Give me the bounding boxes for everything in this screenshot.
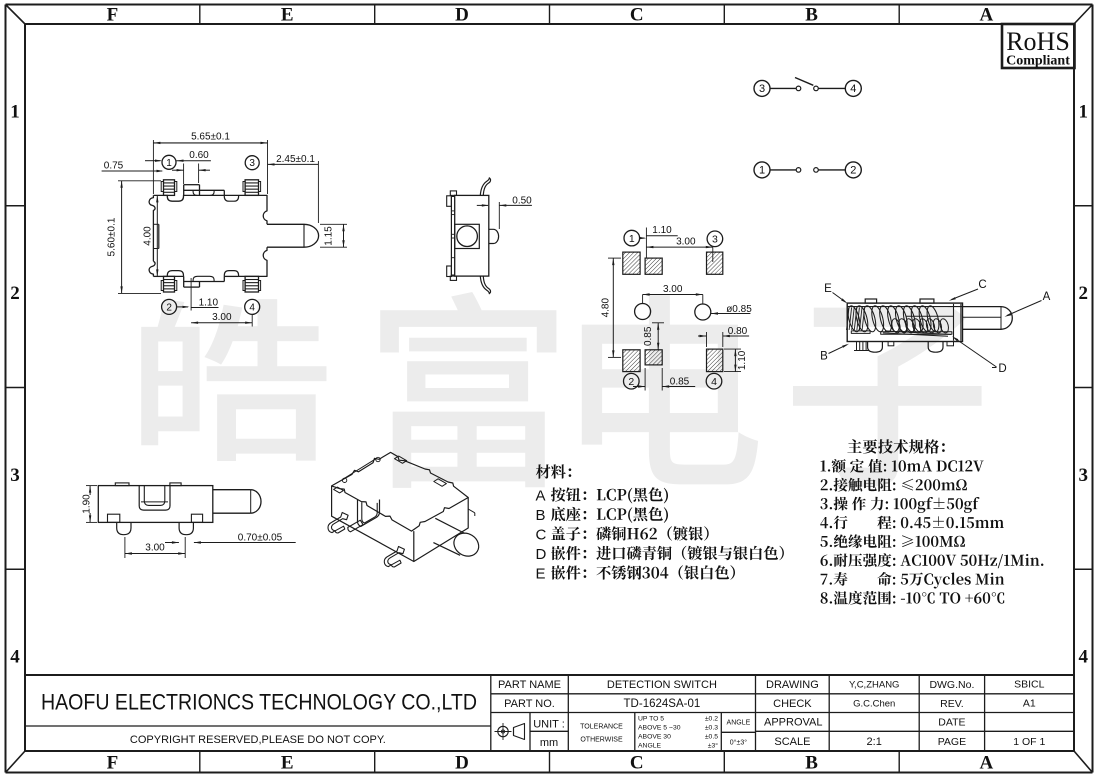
svg-text:0.70±0.05: 0.70±0.05 bbox=[238, 532, 283, 543]
svg-text:4: 4 bbox=[850, 83, 856, 95]
svg-text:APPROVAL: APPROVAL bbox=[764, 717, 823, 729]
svg-text:2: 2 bbox=[850, 165, 856, 177]
svg-text:SBICL: SBICL bbox=[1014, 679, 1045, 691]
svg-text:5.60±0.1: 5.60±0.1 bbox=[107, 217, 118, 256]
svg-text:ANGLE: ANGLE bbox=[727, 720, 751, 727]
svg-text:4.80: 4.80 bbox=[601, 298, 612, 318]
svg-text:4.00: 4.00 bbox=[142, 226, 153, 246]
svg-text:UP TO 5: UP TO 5 bbox=[638, 715, 664, 722]
svg-text:C: C bbox=[630, 753, 644, 774]
svg-text:1.90: 1.90 bbox=[82, 494, 93, 514]
svg-text:A: A bbox=[980, 5, 994, 26]
svg-text:4: 4 bbox=[10, 647, 20, 668]
svg-text:1.15: 1.15 bbox=[324, 226, 335, 246]
svg-text:1 OF 1: 1 OF 1 bbox=[1013, 736, 1045, 748]
svg-text:0.60: 0.60 bbox=[189, 150, 209, 161]
svg-text:DRAWING: DRAWING bbox=[766, 679, 819, 691]
svg-text:ANGLE: ANGLE bbox=[638, 742, 662, 749]
svg-text:DATE: DATE bbox=[938, 717, 965, 729]
svg-text:OTHERWISE: OTHERWISE bbox=[580, 737, 623, 744]
svg-text:D: D bbox=[455, 753, 469, 774]
svg-text:COPYRIGHT RESERVED,PLEASE DO N: COPYRIGHT RESERVED,PLEASE DO NOT COPY. bbox=[130, 734, 386, 746]
svg-text:Compliant: Compliant bbox=[1006, 54, 1070, 69]
svg-text:DWG.No.: DWG.No. bbox=[929, 679, 974, 691]
svg-text:1: 1 bbox=[759, 165, 765, 177]
svg-text:±0.5: ±0.5 bbox=[705, 733, 718, 740]
svg-text:2: 2 bbox=[1078, 283, 1088, 304]
svg-text:C: C bbox=[630, 5, 644, 26]
svg-text:D: D bbox=[536, 546, 547, 563]
svg-text:1: 1 bbox=[166, 158, 172, 169]
svg-text:2:1: 2:1 bbox=[867, 736, 882, 748]
svg-text:1: 1 bbox=[10, 101, 20, 122]
svg-text:ABOVE 5 ~30: ABOVE 5 ~30 bbox=[638, 724, 681, 731]
svg-text:C: C bbox=[978, 279, 986, 291]
svg-text:PART NAME: PART NAME bbox=[498, 679, 561, 691]
svg-text:0.85: 0.85 bbox=[643, 326, 654, 346]
svg-text:±0.2: ±0.2 bbox=[705, 715, 718, 722]
svg-text:3.00: 3.00 bbox=[212, 312, 232, 323]
svg-text:HAOFU ELECTRIONCS TECHNOLOGY C: HAOFU ELECTRIONCS TECHNOLOGY CO.,LTD bbox=[41, 690, 477, 715]
svg-text:DETECTION SWITCH: DETECTION SWITCH bbox=[607, 679, 717, 691]
svg-text:Y,C,ZHANG: Y,C,ZHANG bbox=[849, 680, 900, 691]
svg-text:PART NO.: PART NO. bbox=[504, 698, 555, 710]
svg-text:E: E bbox=[536, 565, 546, 582]
svg-text:0.50: 0.50 bbox=[512, 195, 532, 206]
svg-text:E: E bbox=[281, 753, 294, 774]
svg-text:TOLERANCE: TOLERANCE bbox=[580, 724, 623, 731]
svg-text:A: A bbox=[980, 753, 994, 774]
svg-text:1.10: 1.10 bbox=[737, 350, 748, 370]
svg-text:4: 4 bbox=[1078, 647, 1088, 668]
svg-text:C: C bbox=[536, 526, 547, 543]
svg-text:D: D bbox=[998, 363, 1006, 375]
svg-text:REV.: REV. bbox=[940, 698, 964, 710]
svg-text:0.80: 0.80 bbox=[728, 326, 748, 337]
svg-text:SCALE: SCALE bbox=[774, 736, 810, 748]
svg-text:A: A bbox=[536, 487, 546, 504]
svg-text:E: E bbox=[824, 283, 832, 295]
svg-text:2: 2 bbox=[10, 283, 20, 304]
svg-text:1: 1 bbox=[1078, 101, 1088, 122]
svg-text:D: D bbox=[455, 5, 469, 26]
svg-text:UNIT :: UNIT : bbox=[533, 719, 565, 731]
svg-text:4: 4 bbox=[711, 376, 717, 388]
svg-text:4: 4 bbox=[249, 302, 255, 313]
svg-text:3: 3 bbox=[712, 234, 718, 246]
svg-text:3: 3 bbox=[249, 158, 255, 169]
svg-text:RoHS: RoHS bbox=[1006, 27, 1070, 56]
svg-text:1: 1 bbox=[629, 233, 635, 245]
svg-text:5.65±0.1: 5.65±0.1 bbox=[191, 132, 230, 143]
svg-text:ABOVE 30: ABOVE 30 bbox=[638, 733, 671, 740]
svg-text:3: 3 bbox=[759, 83, 765, 95]
svg-text:3.00: 3.00 bbox=[145, 543, 165, 554]
svg-text:B: B bbox=[805, 753, 818, 774]
svg-text:F: F bbox=[107, 753, 119, 774]
svg-text:E: E bbox=[281, 5, 294, 26]
svg-text:CHECK: CHECK bbox=[773, 698, 812, 710]
svg-text:0°±3°: 0°±3° bbox=[730, 739, 747, 747]
svg-text:2.45±0.1: 2.45±0.1 bbox=[276, 154, 315, 165]
svg-text:TD-1624SA-01: TD-1624SA-01 bbox=[624, 698, 701, 710]
svg-text:F: F bbox=[107, 5, 119, 26]
svg-text:3.00: 3.00 bbox=[676, 236, 696, 247]
svg-text:1.10: 1.10 bbox=[199, 298, 219, 309]
svg-text:2: 2 bbox=[166, 302, 172, 313]
svg-text:1.10: 1.10 bbox=[652, 225, 672, 236]
svg-text:±3°: ±3° bbox=[708, 741, 719, 749]
svg-text:B: B bbox=[805, 5, 818, 26]
svg-text:A: A bbox=[1043, 291, 1051, 303]
svg-text:A1: A1 bbox=[1023, 698, 1036, 710]
svg-text:3: 3 bbox=[1078, 465, 1088, 486]
svg-text:0.75: 0.75 bbox=[104, 160, 124, 171]
svg-text:3: 3 bbox=[10, 465, 20, 486]
svg-text:3.00: 3.00 bbox=[663, 284, 683, 295]
svg-text:B: B bbox=[536, 507, 546, 524]
svg-text:±0.3: ±0.3 bbox=[705, 724, 718, 731]
svg-text:G.C.Chen: G.C.Chen bbox=[853, 699, 895, 710]
svg-text:0.85: 0.85 bbox=[670, 376, 690, 387]
svg-text:B: B bbox=[820, 351, 828, 363]
svg-text:mm: mm bbox=[540, 737, 558, 749]
svg-text:PAGE: PAGE bbox=[938, 736, 966, 748]
